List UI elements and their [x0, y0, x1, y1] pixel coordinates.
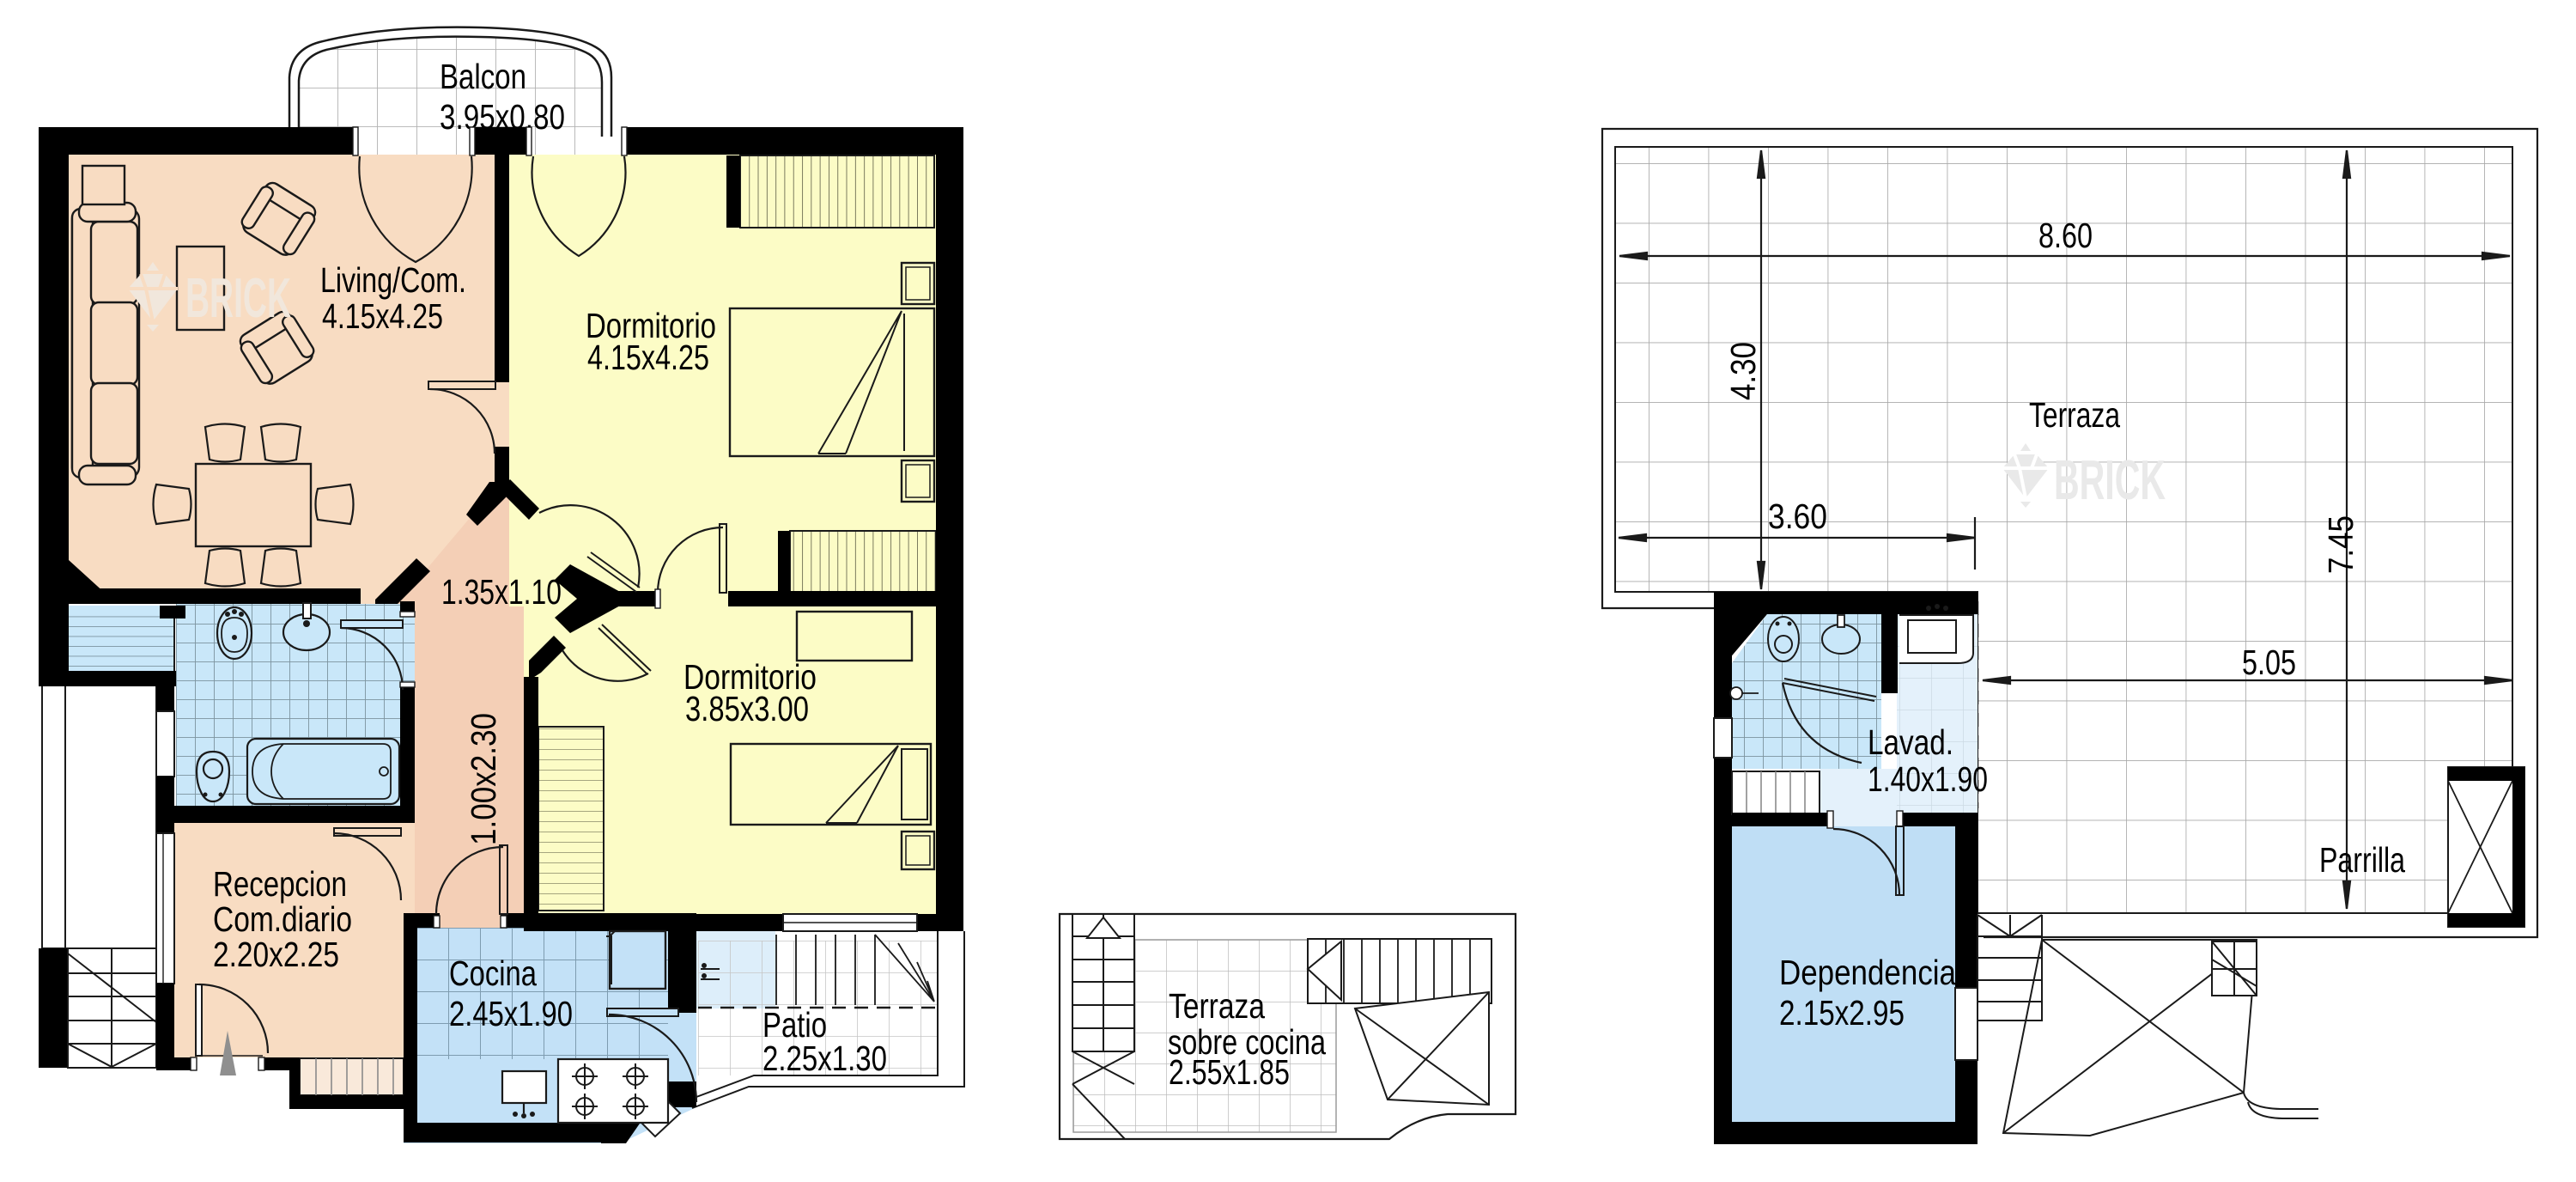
svg-text:2.55x1.85: 2.55x1.85	[1169, 1052, 1290, 1092]
svg-text:Balcon: Balcon	[440, 57, 526, 96]
svg-text:2.25x1.30: 2.25x1.30	[762, 1039, 887, 1078]
svg-text:5.05: 5.05	[2242, 643, 2296, 682]
svg-text:Lavad.: Lavad.	[1868, 722, 1953, 762]
svg-text:Recepcion: Recepcion	[213, 864, 347, 904]
svg-text:Living/Com.: Living/Com.	[320, 260, 466, 300]
svg-text:1.40x1.90: 1.40x1.90	[1868, 759, 1988, 799]
svg-text:1.35x1.10: 1.35x1.10	[441, 572, 562, 612]
svg-text:1.00x2.30: 1.00x2.30	[464, 713, 503, 845]
svg-text:BRICK: BRICK	[2054, 448, 2166, 511]
svg-text:3.60: 3.60	[1768, 497, 1827, 536]
svg-text:Terraza: Terraza	[1169, 986, 1265, 1026]
svg-text:2.20x2.25: 2.20x2.25	[213, 935, 339, 974]
svg-text:2.45x1.90: 2.45x1.90	[449, 994, 573, 1033]
svg-text:BRICK: BRICK	[185, 266, 291, 329]
svg-text:7.45: 7.45	[2321, 515, 2360, 574]
svg-text:Terraza: Terraza	[2029, 395, 2120, 435]
svg-text:8.60: 8.60	[2038, 216, 2093, 255]
svg-text:4.30: 4.30	[1723, 342, 1763, 400]
svg-text:Cocina: Cocina	[449, 954, 537, 993]
svg-text:2.15x2.95: 2.15x2.95	[1779, 993, 1905, 1033]
svg-text:3.85x3.00: 3.85x3.00	[685, 689, 809, 728]
svg-text:Parrilla: Parrilla	[2319, 840, 2405, 880]
svg-text:4.15x4.25: 4.15x4.25	[587, 338, 709, 377]
svg-text:Com.diario: Com.diario	[213, 899, 352, 939]
svg-text:4.15x4.25: 4.15x4.25	[322, 296, 443, 336]
svg-text:Dependencia: Dependencia	[1779, 953, 1956, 992]
